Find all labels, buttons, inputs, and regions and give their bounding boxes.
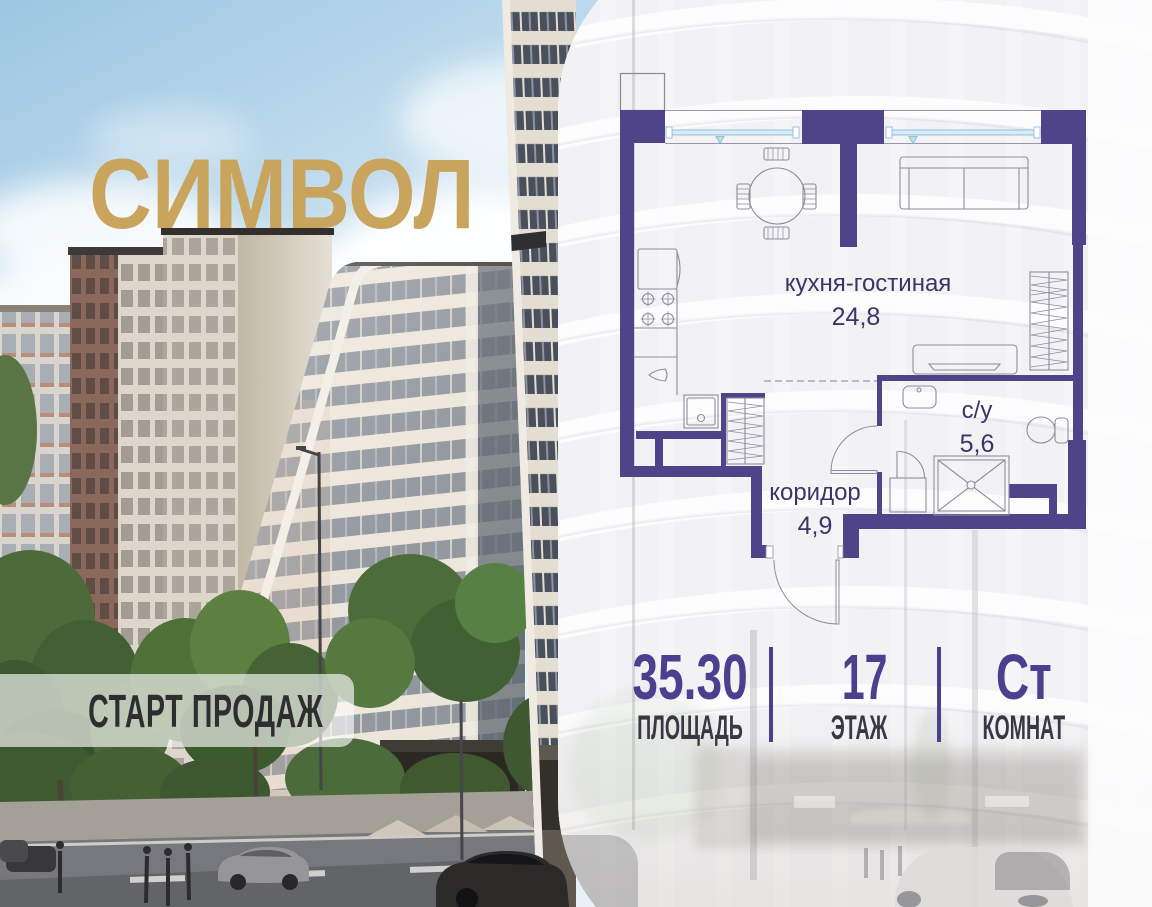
svg-text:кухня-гостиная: кухня-гостиная [785,270,952,297]
svg-text:коридор: коридор [769,479,861,506]
svg-text:4,9: 4,9 [798,512,833,540]
svg-text:24,8: 24,8 [832,303,881,331]
svg-text:5,6: 5,6 [960,430,995,458]
svg-text:с/у: с/у [962,397,993,424]
